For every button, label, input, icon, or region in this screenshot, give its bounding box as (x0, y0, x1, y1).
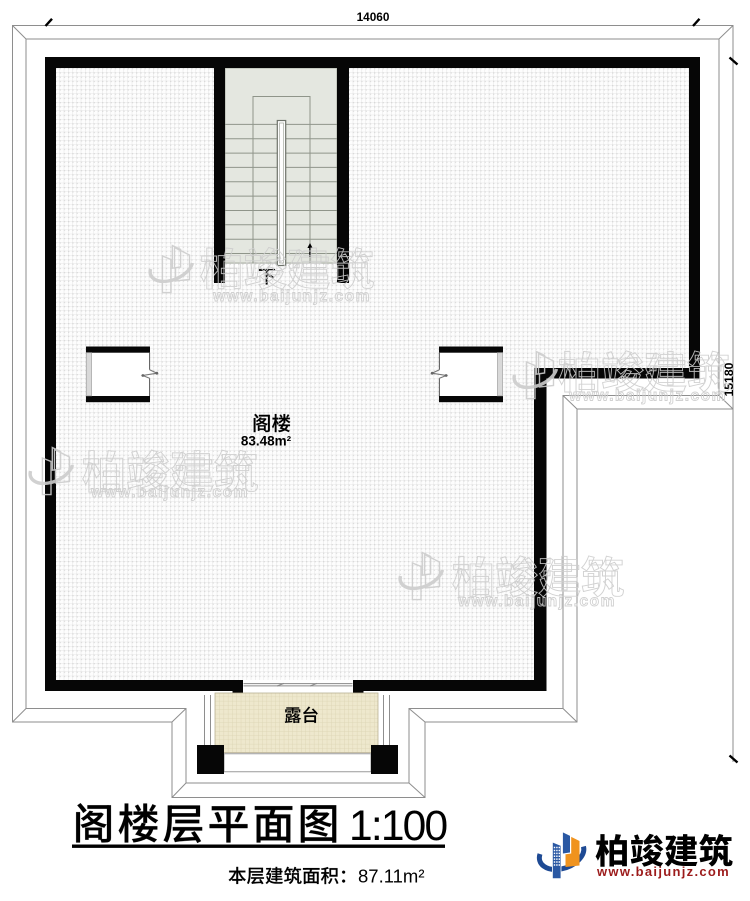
svg-text:www.baijunjz.com: www.baijunjz.com (568, 388, 727, 405)
svg-text:www.baijunjz.com: www.baijunjz.com (212, 288, 371, 305)
svg-text:87.11m²: 87.11m² (358, 866, 425, 887)
svg-text:14060: 14060 (357, 10, 390, 24)
svg-text:1:100: 1:100 (349, 803, 447, 850)
svg-text:www.baijunjz.com: www.baijunjz.com (596, 864, 730, 879)
svg-text:www.baijunjz.com: www.baijunjz.com (90, 484, 249, 501)
svg-text:83.48m²: 83.48m² (241, 434, 292, 449)
svg-text:www.baijunjz.com: www.baijunjz.com (457, 593, 616, 610)
